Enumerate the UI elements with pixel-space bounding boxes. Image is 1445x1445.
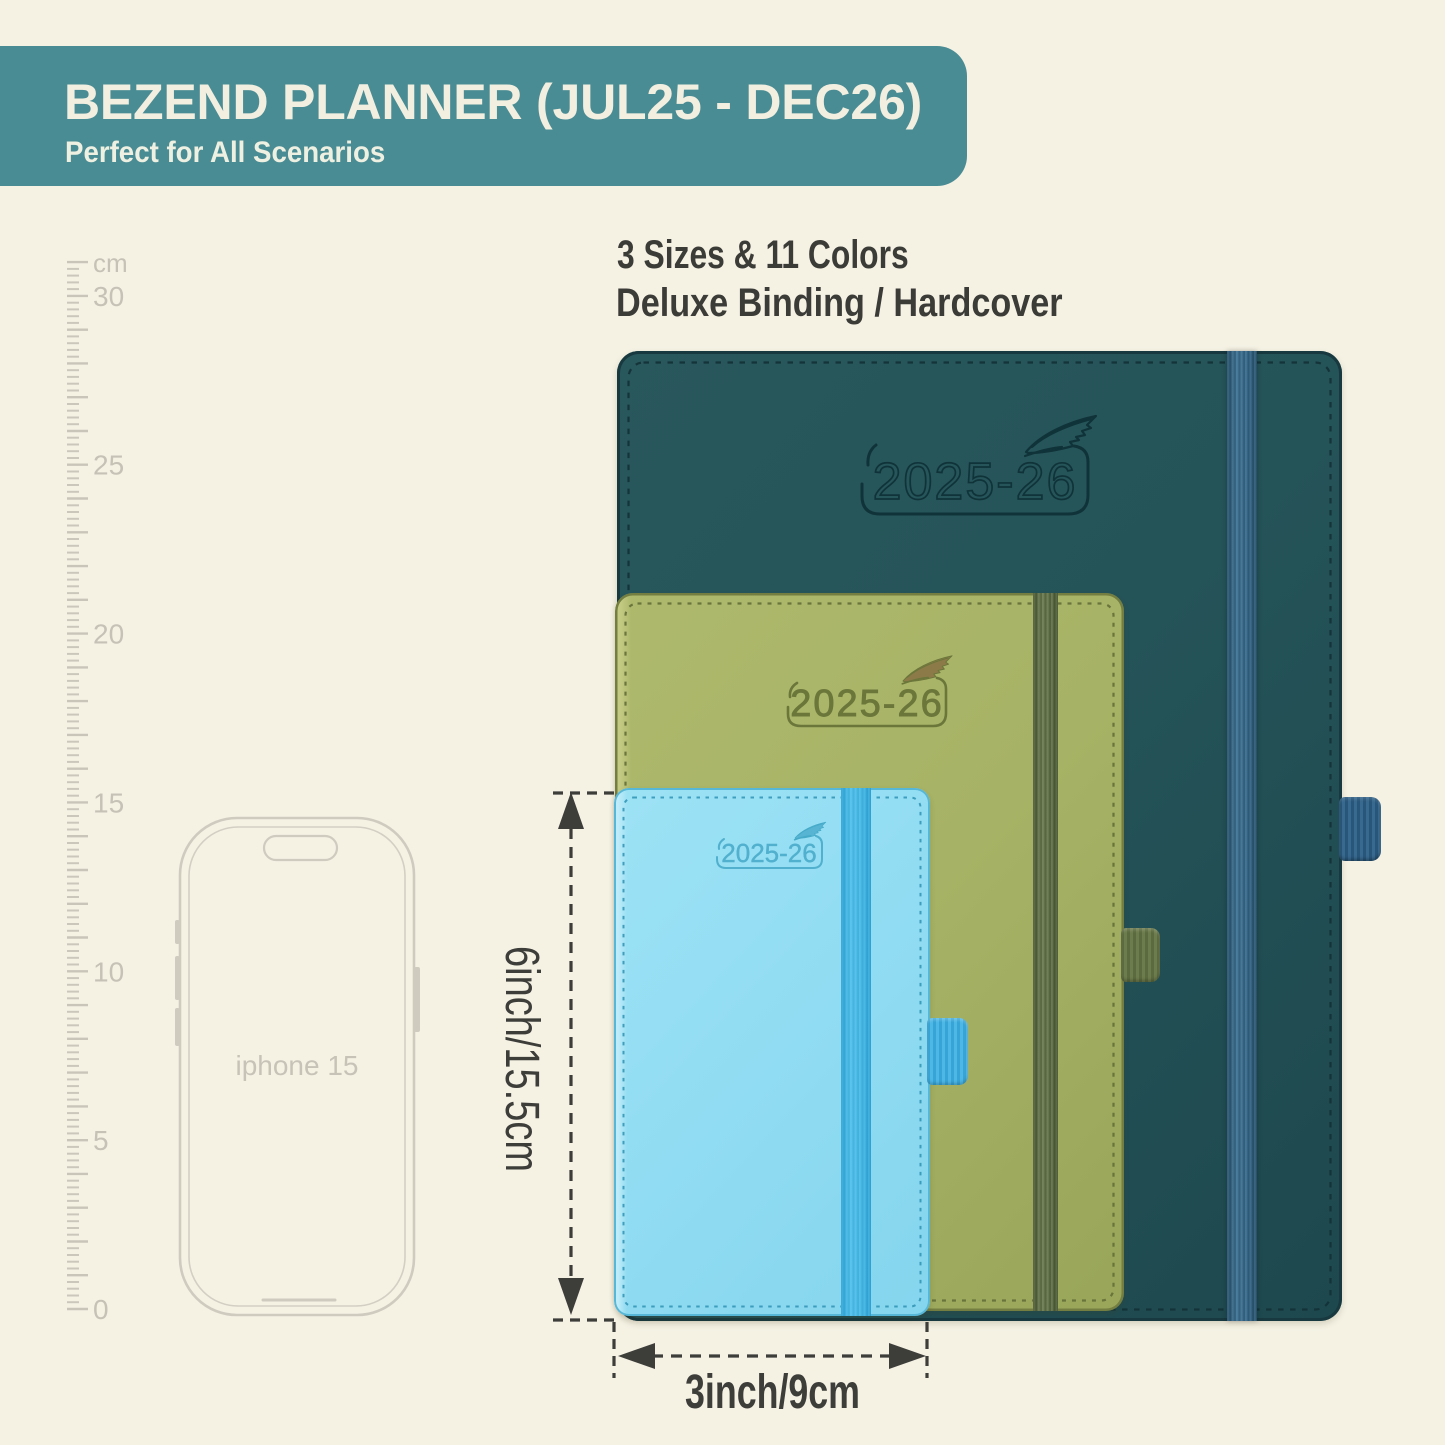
svg-text:6inch/15.5cm: 6inch/15.5cm bbox=[495, 946, 548, 1172]
svg-text:3inch/9cm: 3inch/9cm bbox=[685, 1366, 860, 1419]
